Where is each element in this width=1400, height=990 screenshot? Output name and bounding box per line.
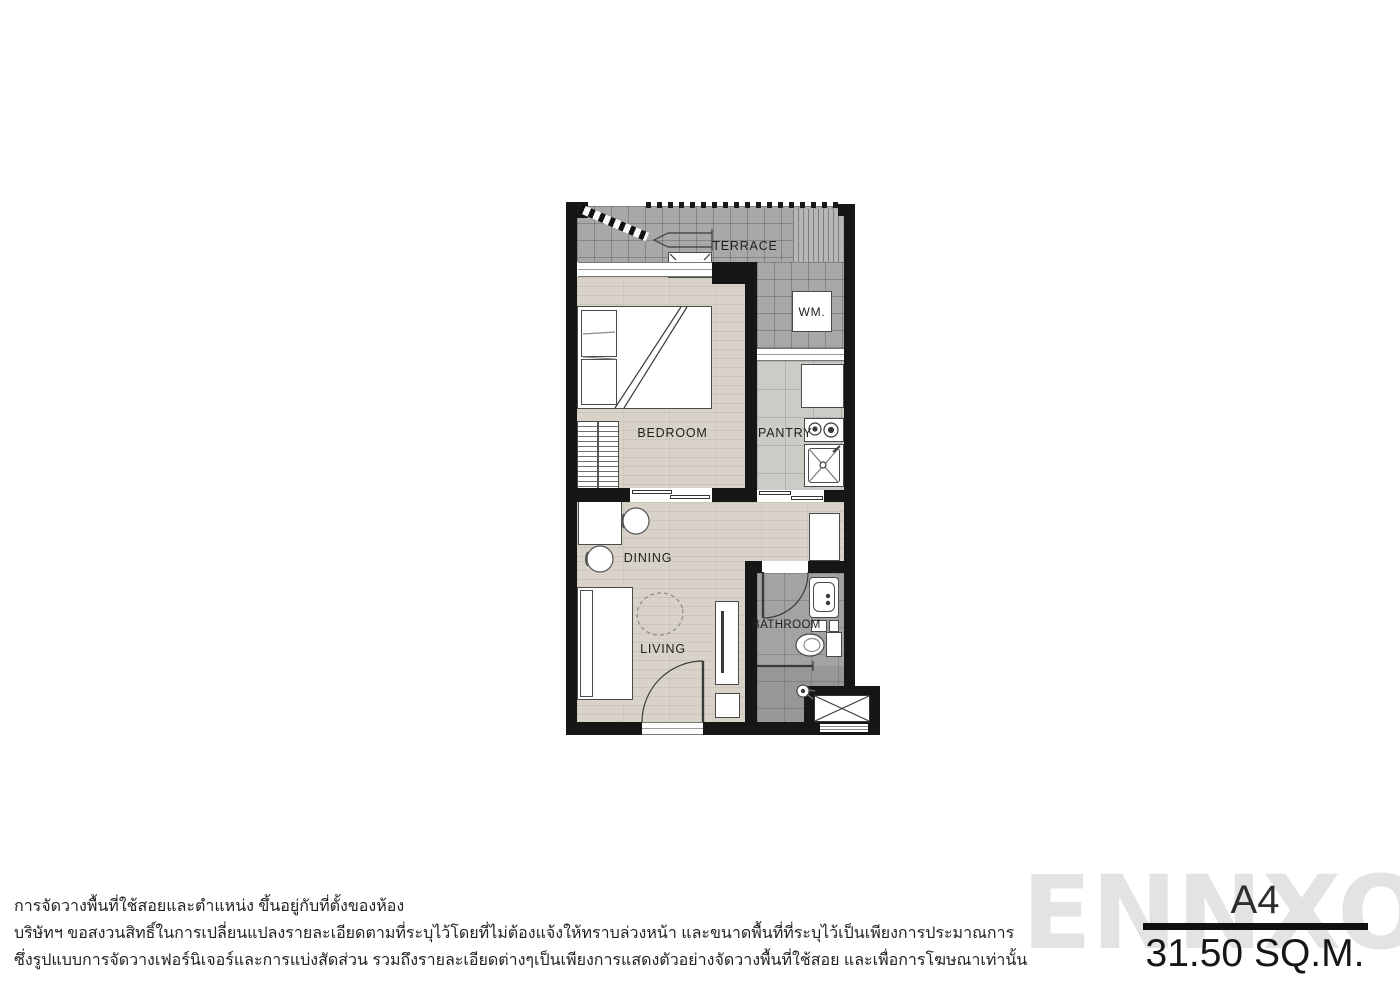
ac-ledge-vent	[820, 724, 868, 732]
disclaimer-line: บริษัทฯ ขอสงวนสิทธิ์ในการเปลี่ยนแปลงรายล…	[14, 920, 1027, 947]
entry-door-threshold	[642, 722, 703, 735]
bathroom-sink-basin	[813, 582, 835, 612]
pillow	[581, 359, 617, 405]
shoe-cabinet	[715, 693, 740, 718]
wall-bathroom-top-right	[808, 561, 855, 573]
sliding-door-panel	[670, 495, 710, 499]
disclaimer-text: การจัดวางพื้นที่ใช้สอยและตำแหน่ง ขึ้นอยู…	[14, 893, 1027, 974]
washing-machine: WM.	[792, 291, 832, 332]
bathroom-label: BATHROOM	[752, 619, 816, 631]
refrigerator-counter	[801, 364, 844, 408]
window-terrace-bedroom	[578, 262, 712, 277]
wall-left	[566, 202, 577, 735]
tv-screen	[721, 611, 724, 673]
terrace-label: TERRACE	[700, 239, 790, 253]
sofa-back-cushion	[580, 590, 593, 697]
pantry-label: PANTRY	[758, 426, 810, 440]
dining-label: DINING	[620, 551, 676, 565]
wardrobe	[577, 421, 619, 489]
wall-bedroom-right	[745, 262, 757, 502]
washing-machine-label: WM.	[798, 305, 825, 319]
wall-bedroom-bottom-right	[712, 488, 745, 502]
unit-code: A4	[1140, 878, 1370, 923]
pillow	[581, 310, 617, 357]
unit-area: 31.50 SQ.M.	[1135, 932, 1375, 976]
dining-table	[578, 501, 622, 545]
wall-top-right-stub	[838, 204, 855, 216]
sliding-door-panel	[632, 490, 672, 494]
kitchen-sink-basin	[808, 448, 840, 483]
terrace-railing	[646, 202, 838, 208]
sliding-door-panel	[791, 496, 823, 500]
floor-plan-page: WM. TERRACE BEDROOM PANTRY DINING	[0, 0, 1400, 990]
tv-console	[715, 601, 739, 685]
bedroom-label: BEDROOM	[630, 426, 715, 440]
disclaimer-line: การจัดวางพื้นที่ใช้สอยและตำแหน่ง ขึ้นอยู…	[14, 893, 1027, 920]
disclaimer-line: ซึ่งรูปแบบการจัดวางเฟอร์นิเจอร์และการแบ่…	[14, 947, 1027, 974]
sliding-door-panel	[759, 491, 791, 495]
wall-pantry-bottom-stub	[824, 490, 844, 502]
unit-title-bar	[1143, 923, 1368, 930]
wall-bedroom-top-corner	[712, 262, 745, 284]
wall-bathroom-left	[745, 561, 757, 735]
living-label: LIVING	[635, 642, 691, 656]
bathroom-niche	[829, 620, 839, 632]
ac-shaft-box	[814, 695, 870, 722]
terrace-louver-decking	[793, 209, 843, 262]
toilet-tank	[826, 632, 842, 657]
hallway-cabinet	[809, 513, 840, 561]
door-opening-bathroom	[762, 561, 808, 573]
window-terrace-pantry	[757, 348, 844, 361]
wall-bedroom-bottom-left	[577, 488, 630, 502]
wall-right	[844, 204, 855, 686]
